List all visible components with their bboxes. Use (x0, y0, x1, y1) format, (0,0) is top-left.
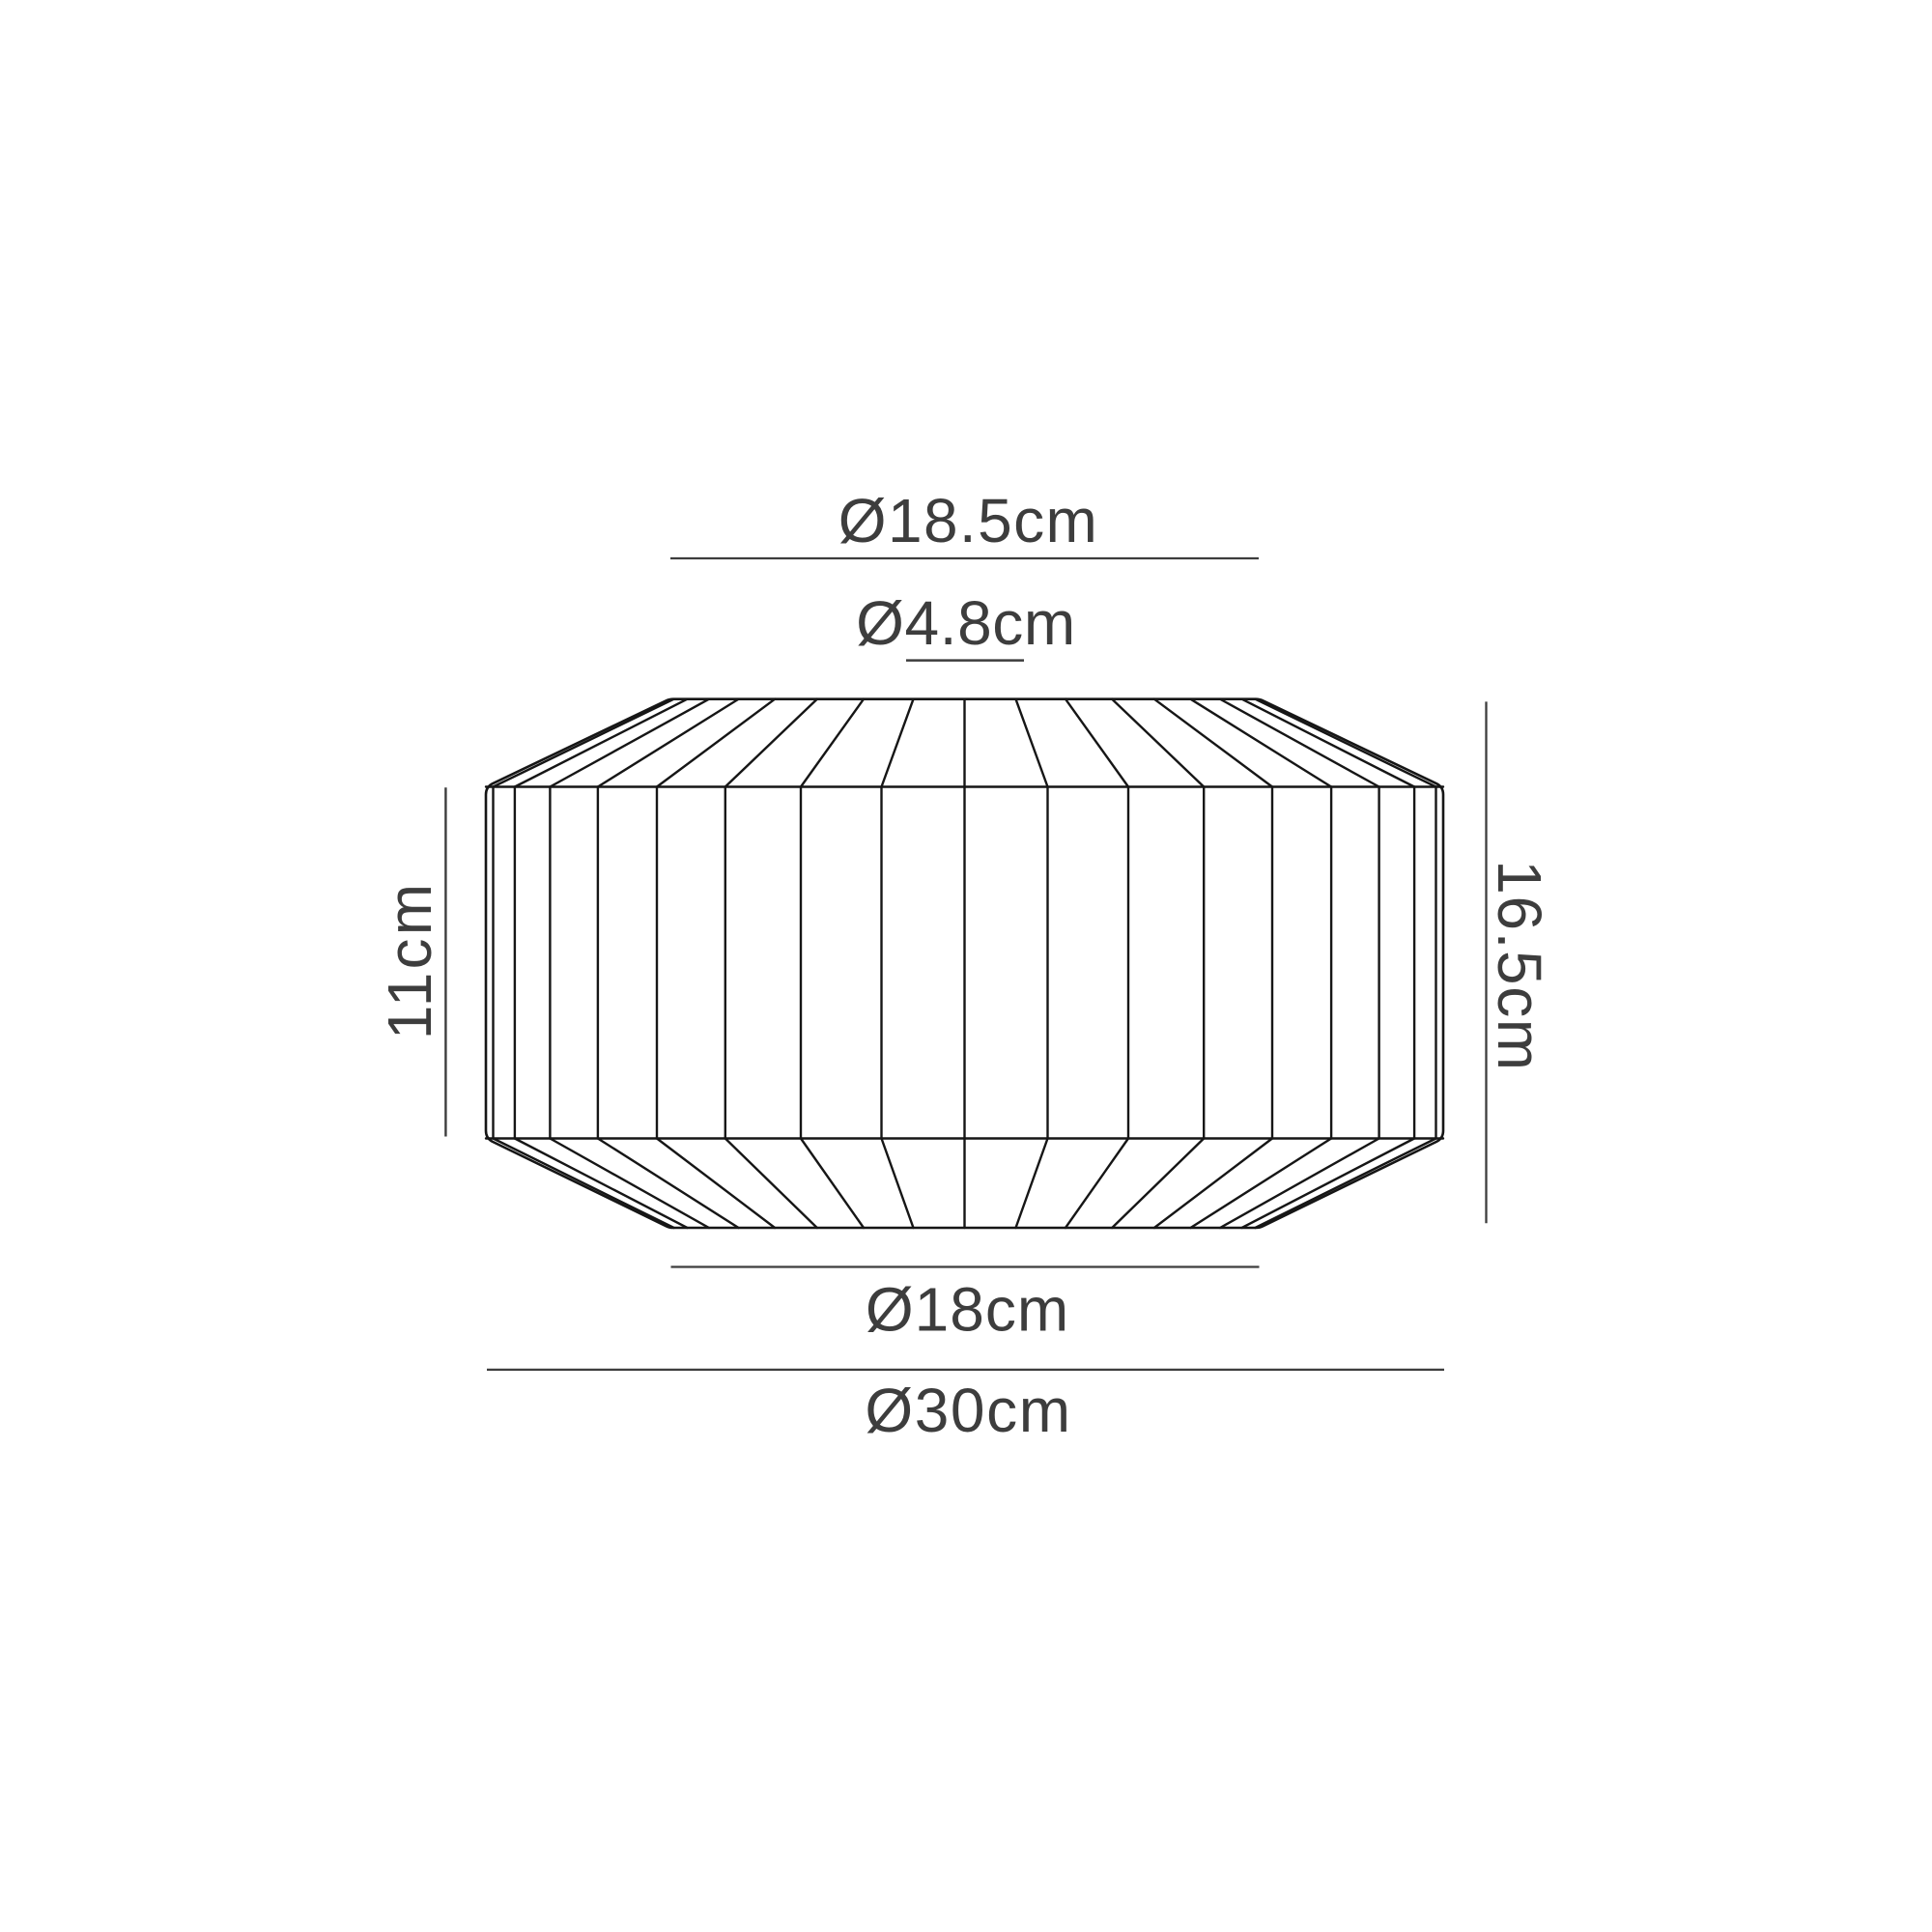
svg-text:Ø30cm: Ø30cm (865, 1376, 1071, 1445)
svg-text:Ø18cm: Ø18cm (866, 1275, 1069, 1345)
svg-text:Ø4.8cm: Ø4.8cm (856, 588, 1076, 658)
svg-text:Ø18.5cm: Ø18.5cm (838, 486, 1098, 555)
svg-text:11cm: 11cm (375, 881, 444, 1040)
svg-text:16.5cm: 16.5cm (1485, 860, 1554, 1071)
